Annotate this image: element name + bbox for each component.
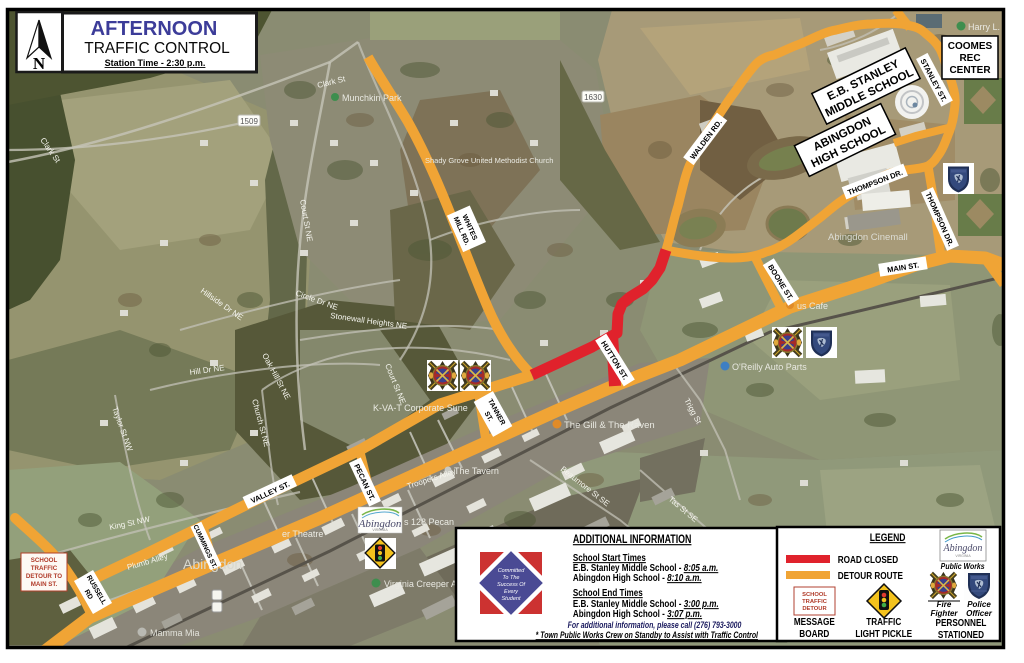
svg-text:er Theatre: er Theatre: [282, 529, 323, 539]
svg-text:TRAFFIC: TRAFFIC: [802, 599, 828, 605]
svg-text:Virginia Creeper Ab: Virginia Creeper Ab: [384, 579, 462, 589]
svg-text:Harry L.: Harry L.: [968, 22, 1000, 32]
svg-text:K-VA-T Corporate Sune: K-VA-T Corporate Sune: [373, 403, 468, 413]
svg-text:LEGEND: LEGEND: [870, 532, 906, 544]
svg-text:Student: Student: [502, 596, 521, 602]
svg-text:Public Works: Public Works: [941, 561, 986, 571]
svg-text:PERSONNEL: PERSONNEL: [935, 616, 986, 628]
svg-text:Every: Every: [504, 589, 519, 595]
svg-text:N: N: [33, 54, 46, 73]
svg-text:SCHOOL: SCHOOL: [31, 557, 58, 564]
svg-text:Abingdon: Abingdon: [943, 543, 983, 554]
svg-text:VIRGINIA: VIRGINIA: [372, 528, 388, 532]
svg-text:TRAFFIC: TRAFFIC: [31, 565, 58, 572]
svg-text:Abingdon High School - 8:10 a.: Abingdon High School - 8:10 a.m.: [573, 572, 702, 583]
svg-text:AFTERNOON: AFTERNOON: [91, 18, 218, 40]
svg-text:MAIN ST.: MAIN ST.: [31, 581, 58, 588]
svg-text:Munchkin Park: Munchkin Park: [342, 93, 402, 103]
svg-text:O'Reilly Auto Parts: O'Reilly Auto Parts: [732, 362, 807, 372]
svg-text:DETOUR TO: DETOUR TO: [26, 573, 62, 580]
svg-text:Success Of: Success Of: [497, 582, 526, 588]
svg-text:TRAFFIC CONTROL: TRAFFIC CONTROL: [84, 40, 230, 57]
svg-text:ADDITIONAL INFORMATION: ADDITIONAL INFORMATION: [573, 534, 692, 546]
svg-text:Mamma Mia: Mamma Mia: [150, 628, 200, 638]
svg-text:TRAFFIC: TRAFFIC: [866, 615, 901, 627]
svg-text:The Tavern: The Tavern: [454, 466, 499, 476]
svg-text:MESSAGE: MESSAGE: [794, 615, 835, 627]
svg-text:VIRGINIA: VIRGINIA: [955, 554, 971, 558]
svg-text:CENTER: CENTER: [949, 65, 991, 76]
svg-text:ROAD CLOSED: ROAD CLOSED: [838, 553, 899, 565]
svg-text:Station Time - 2:30 p.m.: Station Time - 2:30 p.m.: [105, 58, 206, 68]
svg-text:Shady Grove United Methodist C: Shady Grove United Methodist Church: [425, 156, 553, 165]
svg-text:Abingdon High School - 3:07 p.: Abingdon High School - 3:07 p.m.: [573, 608, 702, 619]
svg-text:DETOUR ROUTE: DETOUR ROUTE: [838, 569, 903, 581]
svg-text:SCHOOL: SCHOOL: [802, 592, 827, 598]
svg-text:* Town Public Works Crew on St: * Town Public Works Crew on Standby to A…: [536, 630, 759, 640]
svg-text:The Gill & The Raven: The Gill & The Raven: [564, 420, 655, 431]
svg-text:1509: 1509: [240, 117, 258, 126]
svg-text:LIGHT PICKLE: LIGHT PICKLE: [855, 627, 912, 639]
svg-text:School End Times: School End Times: [573, 587, 643, 598]
svg-text:For additional information, pl: For additional information, please call …: [568, 620, 742, 630]
svg-text:BOARD: BOARD: [799, 627, 829, 639]
svg-text:COOMES: COOMES: [948, 41, 993, 52]
svg-text:us Cafe: us Cafe: [797, 301, 828, 311]
svg-text:DETOUR: DETOUR: [802, 606, 827, 612]
svg-text:To The: To The: [503, 575, 520, 581]
svg-text:s 128 Pecan: s 128 Pecan: [404, 517, 454, 527]
svg-text:Abingdon Cinemall: Abingdon Cinemall: [828, 232, 908, 243]
svg-text:1630: 1630: [584, 93, 602, 102]
svg-text:REC: REC: [959, 53, 980, 64]
svg-text:Fire: Fire: [937, 600, 952, 609]
svg-text:Police: Police: [967, 600, 991, 609]
svg-text:Committed: Committed: [498, 568, 526, 574]
svg-text:STATIONED: STATIONED: [938, 628, 984, 640]
